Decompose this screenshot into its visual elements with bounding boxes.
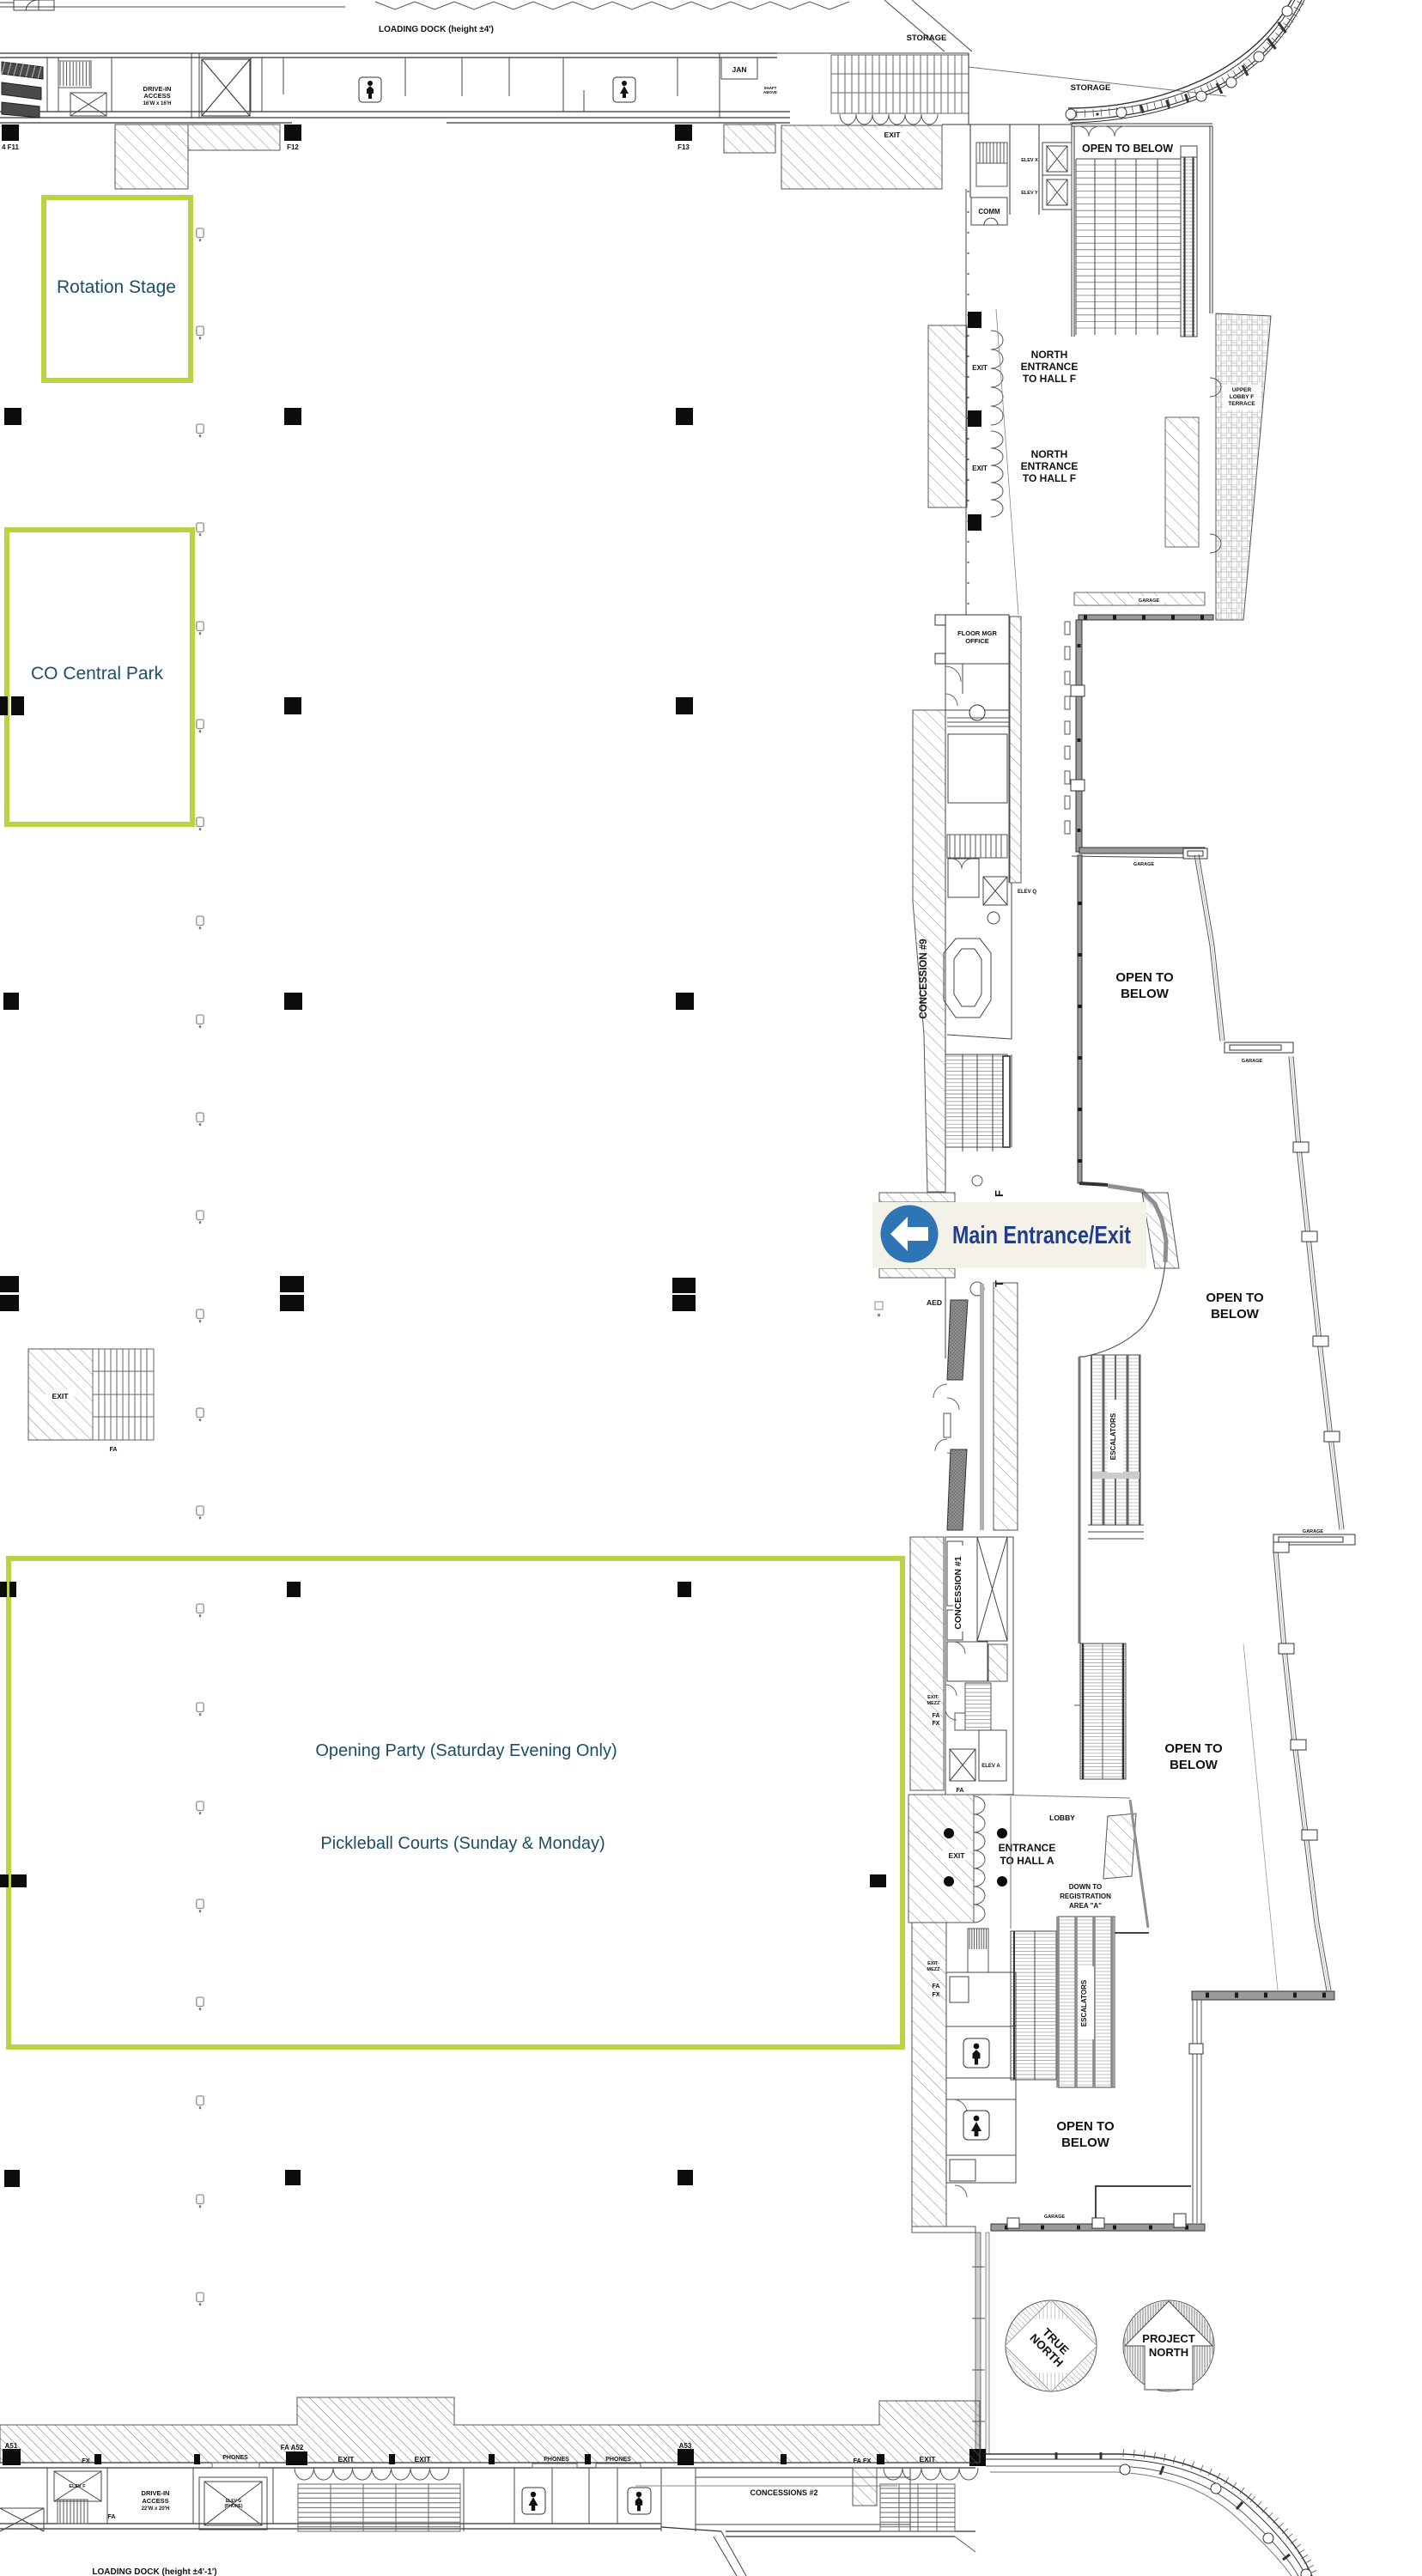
svg-text:EXIT: EXIT [920, 2455, 937, 2464]
svg-text:BELOW: BELOW [1170, 1758, 1218, 1772]
svg-text:STORAGE: STORAGE [907, 33, 947, 43]
svg-text:ELEV Y: ELEV Y [1021, 191, 1038, 196]
svg-text:Rotation Stage: Rotation Stage [57, 277, 176, 297]
svg-text:FA: FA [110, 1447, 118, 1453]
svg-text:TO HALL F: TO HALL F [1023, 373, 1076, 385]
svg-text:TO HALL A: TO HALL A [1000, 1855, 1054, 1867]
svg-text:AREA "A": AREA "A" [1069, 1902, 1102, 1910]
svg-text:FA FX: FA FX [854, 2457, 872, 2464]
svg-text:F: F [993, 1190, 1006, 1197]
svg-text:FA: FA [933, 1713, 940, 1719]
svg-text:CONCESSION #1: CONCESSION #1 [953, 1556, 963, 1629]
svg-text:EXIT: EXIT [52, 1392, 70, 1400]
svg-text:ELEV A: ELEV A [981, 1764, 1000, 1769]
svg-text:ESCALATORS: ESCALATORS [1109, 1413, 1117, 1460]
svg-text:TERRACE: TERRACE [1228, 401, 1255, 407]
svg-text:FA: FA [957, 1788, 964, 1794]
svg-text:FLOOR MGR: FLOOR MGR [957, 629, 997, 637]
svg-text:A53: A53 [679, 2442, 692, 2450]
svg-text:FX: FX [82, 2457, 90, 2464]
svg-text:DRIVE-IN: DRIVE-IN [142, 2489, 170, 2497]
svg-text:STORAGE: STORAGE [1071, 83, 1111, 93]
svg-text:OPEN TO: OPEN TO [1206, 1291, 1264, 1305]
svg-text:Opening Party (Saturday Evenin: Opening Party (Saturday Evening Only) [315, 1741, 617, 1760]
svg-text:ENTRANCE: ENTRANCE [999, 1842, 1056, 1854]
svg-text:PHONES: PHONES [605, 2457, 631, 2463]
svg-text:PROJECT: PROJECT [1142, 2332, 1194, 2345]
svg-text:ABOVE: ABOVE [763, 90, 777, 94]
svg-text:PHONES: PHONES [544, 2457, 569, 2463]
svg-text:FA A52: FA A52 [281, 2444, 304, 2451]
svg-text:PHONES: PHONES [222, 2455, 248, 2461]
svg-text:ELEV X: ELEV X [1021, 158, 1038, 163]
svg-text:ESCALATORS: ESCALATORS [1080, 1979, 1088, 2026]
svg-text:LOBBY F: LOBBY F [1230, 394, 1254, 400]
svg-text:ENTRANCE: ENTRANCE [1021, 460, 1079, 472]
svg-text:NORTH: NORTH [1031, 349, 1068, 361]
svg-text:OPEN TO BELOW: OPEN TO BELOW [1082, 143, 1173, 155]
svg-text:GARAGE: GARAGE [1139, 598, 1159, 604]
svg-text:REGISTRATION: REGISTRATION [1060, 1893, 1111, 1900]
svg-text:UPPER: UPPER [1232, 387, 1252, 393]
svg-text:GARAGE: GARAGE [1242, 1059, 1262, 1064]
svg-text:DOWN TO: DOWN TO [1069, 1883, 1103, 1891]
svg-text:OPEN TO: OPEN TO [1164, 1741, 1223, 1756]
svg-text:ELEV F: ELEV F [69, 2484, 86, 2489]
svg-text:FX: FX [933, 1992, 940, 1998]
svg-text:OFFICE: OFFICE [965, 637, 989, 645]
svg-text:EXIT: EXIT [949, 1851, 966, 1860]
svg-text:EXIT: EXIT [972, 465, 987, 472]
svg-text:Pickleball Courts (Sunday & Mo: Pickleball Courts (Sunday & Monday) [320, 1834, 605, 1853]
svg-text:FA: FA [108, 2514, 116, 2520]
svg-text:ELEV Q: ELEV Q [1018, 890, 1036, 895]
svg-text:F12: F12 [287, 143, 299, 151]
svg-text:FX: FX [933, 1721, 940, 1727]
svg-text:ENTRANCE: ENTRANCE [1021, 361, 1079, 373]
svg-text:LOADING DOCK (height ±4'): LOADING DOCK (height ±4') [379, 25, 494, 34]
svg-text:CONCESSIONS #2: CONCESSIONS #2 [750, 2488, 817, 2497]
svg-text:22'W x 20'H: 22'W x 20'H [142, 2506, 170, 2512]
svg-text:JAN: JAN [732, 65, 746, 74]
svg-text:MEZZ: MEZZ [927, 1701, 941, 1706]
svg-text:F13: F13 [678, 143, 690, 151]
svg-text:LOADING DOCK (height ±4'-1'): LOADING DOCK (height ±4'-1') [92, 2567, 216, 2576]
svg-text:ACCESS: ACCESS [142, 2497, 168, 2505]
svg-text:A51: A51 [5, 2442, 18, 2450]
svg-text:GARAGE: GARAGE [1303, 1529, 1323, 1534]
svg-text:OPEN TO: OPEN TO [1115, 970, 1174, 985]
svg-text:EXIT-: EXIT- [927, 1695, 939, 1700]
svg-text:AED: AED [927, 1298, 942, 1307]
svg-text:16'W x 16'H: 16'W x 16'H [143, 101, 172, 106]
svg-text:EXIT: EXIT [415, 2455, 432, 2464]
svg-text:Main Entrance/Exit: Main Entrance/Exit [952, 1222, 1131, 1249]
svg-text:CONCESSION #9: CONCESSION #9 [919, 939, 929, 1018]
svg-text:EXIT: EXIT [884, 131, 902, 139]
svg-text:EXIT: EXIT [338, 2455, 355, 2464]
svg-text:BELOW: BELOW [1121, 987, 1170, 1001]
svg-text:OPEN TO: OPEN TO [1056, 2119, 1115, 2134]
svg-text:EXIT-: EXIT- [927, 1961, 939, 1966]
svg-text:FA: FA [933, 1984, 940, 1990]
svg-text:COMM: COMM [978, 208, 1000, 216]
svg-text:BELOW: BELOW [1211, 1307, 1260, 1321]
svg-text:ACCESS: ACCESS [143, 92, 170, 100]
svg-text:(PHONE): (PHONE) [224, 2504, 242, 2509]
svg-text:BELOW: BELOW [1061, 2136, 1110, 2150]
svg-text:LOBBY: LOBBY [1049, 1814, 1075, 1822]
svg-text:4 F11: 4 F11 [2, 143, 20, 151]
svg-text:EXIT: EXIT [972, 364, 987, 372]
svg-text:CO Central Park: CO Central Park [31, 664, 164, 683]
svg-text:GARAGE: GARAGE [1044, 2215, 1065, 2220]
svg-text:NORTH: NORTH [1031, 448, 1068, 460]
svg-text:TO HALL F: TO HALL F [1023, 472, 1076, 484]
svg-text:GARAGE: GARAGE [1133, 862, 1154, 867]
svg-text:NORTH: NORTH [1149, 2346, 1188, 2359]
svg-text:MEZZ: MEZZ [927, 1967, 941, 1972]
